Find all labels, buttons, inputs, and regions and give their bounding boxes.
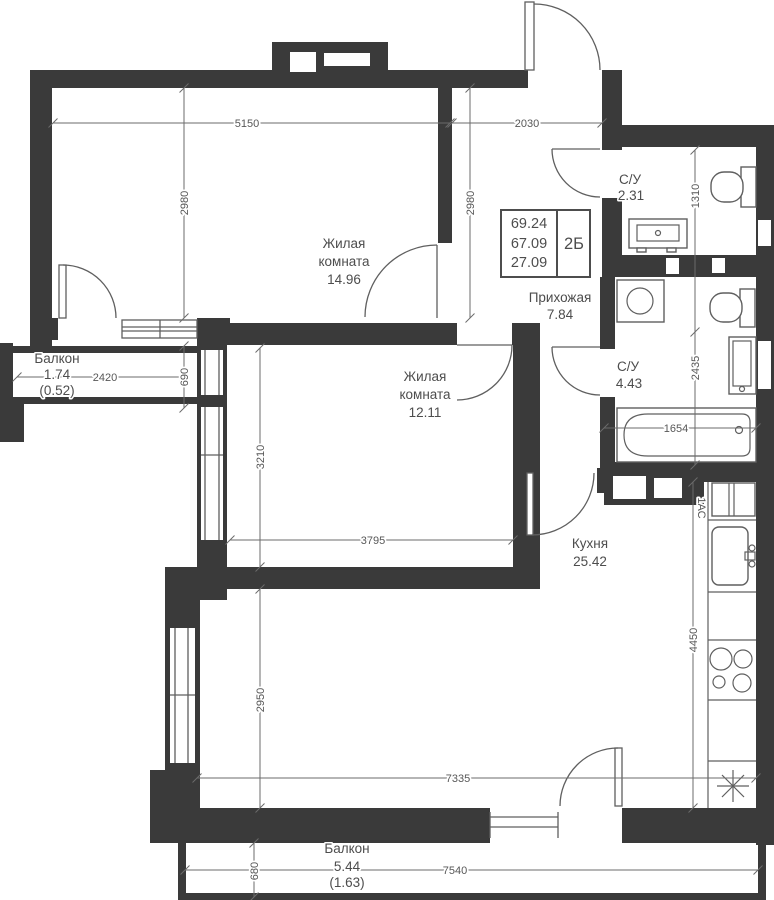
kitchen-sink-icon — [712, 527, 755, 585]
dim-room2-height: 3210 — [255, 445, 267, 469]
toilet-icon — [711, 167, 756, 207]
info-area-total: 69.24 — [511, 216, 547, 232]
room-label-bath2: С/У 4.43 — [616, 359, 642, 391]
snowflake-icon — [717, 770, 749, 802]
window-kitchen-west — [170, 628, 195, 763]
balcony-west-name: Балкон — [34, 351, 79, 366]
washing-machine-icon — [617, 280, 664, 322]
room-label-kitchen: Кухня 25.42 — [572, 536, 608, 569]
living2-name-line1: Жилая — [404, 369, 447, 384]
door-balcony-south — [560, 748, 622, 806]
shaft-label: 1АС — [695, 497, 707, 518]
apartment-info-box: 69.24 67.09 27.09 2Б — [501, 210, 590, 277]
door-bath2 — [552, 347, 600, 395]
room-label-hall: Прихожая 7.84 — [529, 290, 592, 322]
dim-bath-length: 1654 — [664, 423, 688, 435]
vanity-sink-icon — [629, 219, 687, 252]
room-label-living2: Жилая комната 12.11 — [399, 369, 451, 420]
balcony-west-area-coeff: (0.52) — [39, 383, 74, 398]
living1-name-line1: Жилая — [323, 236, 366, 251]
door-balcony-west — [59, 265, 116, 318]
balcony-south-area-coeff: (1.63) — [329, 875, 364, 890]
entrance-door — [525, 2, 600, 70]
hall-area: 7.84 — [547, 307, 574, 322]
tall-sink-cabinet-icon — [729, 337, 756, 394]
balcony-west-area: 1.74 — [44, 367, 71, 382]
dim-balcony-west-width: 2420 — [93, 372, 117, 384]
door-room1 — [365, 245, 437, 318]
balcony-south-name: Балкон — [324, 841, 369, 856]
fridge-icon — [712, 483, 755, 516]
room-label-balcony-west: Балкон 1.74 (0.52) — [34, 351, 79, 398]
dim-hall-width: 2030 — [515, 118, 539, 130]
kitchen-area: 25.42 — [573, 554, 607, 569]
bath2-name: С/У — [617, 359, 640, 374]
dim-room1-height-right: 2980 — [465, 191, 477, 215]
dim-balcony-west-depth: 690 — [179, 368, 191, 386]
room-label-bath1: С/У 2.31 — [618, 172, 644, 203]
window-room2-west — [201, 350, 223, 540]
dim-bath1-height: 1310 — [690, 184, 702, 208]
info-flat-type: 2Б — [564, 235, 584, 253]
bathtub-icon — [617, 408, 756, 462]
window-room1-south — [122, 318, 197, 340]
info-area-no-balcony: 67.09 — [511, 236, 547, 252]
dim-kitchen-width: 7335 — [446, 773, 470, 785]
info-area-living: 27.09 — [511, 255, 547, 271]
living1-name-line2: комната — [318, 254, 370, 269]
room-label-living1: Жилая комната 14.96 — [318, 236, 370, 287]
living2-area: 12.11 — [409, 405, 442, 420]
walls — [0, 42, 774, 900]
bath1-name: С/У — [619, 172, 642, 187]
room-label-balcony-south: Балкон 5.44 (1.63) — [324, 841, 369, 890]
door-room2 — [457, 345, 512, 400]
bath1-area: 2.31 — [618, 188, 644, 203]
bath2-area: 4.43 — [616, 376, 642, 391]
dim-room1-height-left: 2980 — [179, 191, 191, 215]
living1-area: 14.96 — [327, 272, 361, 287]
kitchen-name: Кухня — [572, 536, 608, 551]
floor-plan: 5150 2030 2980 2980 1310 2435 1654 2420 … — [0, 0, 774, 900]
floor-plan-svg: 5150 2030 2980 2980 1310 2435 1654 2420 … — [0, 0, 774, 900]
stove-icon — [710, 648, 752, 692]
toilet-icon — [710, 289, 755, 327]
hall-name: Прихожая — [529, 290, 592, 305]
balcony-south-area: 5.44 — [334, 859, 361, 874]
dim-bath2-height: 2435 — [690, 356, 702, 380]
dim-balcony-south-depth: 680 — [249, 862, 261, 880]
dim-kitchen-height-left: 2950 — [255, 688, 267, 712]
door-bath1 — [552, 149, 600, 197]
living2-name-line2: комната — [399, 387, 451, 402]
dim-room1-width: 5150 — [235, 118, 259, 130]
window-kitchen-south — [490, 808, 558, 843]
dim-balcony-south-width: 7540 — [443, 865, 467, 877]
dim-kitchen-height-right: 4450 — [688, 628, 700, 652]
dim-room2-width: 3795 — [361, 535, 385, 547]
